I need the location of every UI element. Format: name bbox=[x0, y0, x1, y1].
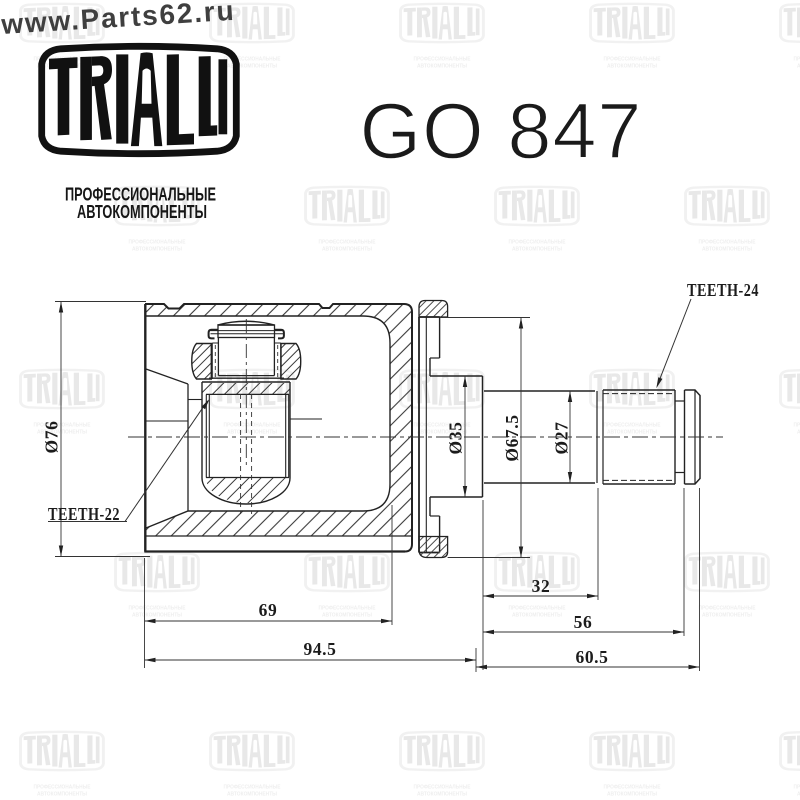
svg-text:Ø27: Ø27 bbox=[552, 422, 572, 455]
svg-text:ПРОФЕССИОНАЛЬНЫЕ: ПРОФЕССИОНАЛЬНЫЕ bbox=[699, 606, 756, 612]
svg-text:69: 69 bbox=[259, 600, 278, 620]
svg-text:АВТОКОМПОНЕНТЫ: АВТОКОМПОНЕНТЫ bbox=[77, 201, 207, 222]
svg-text:56: 56 bbox=[574, 612, 593, 632]
svg-text:Ø35: Ø35 bbox=[446, 422, 466, 455]
svg-text:TEETH-24: TEETH-24 bbox=[687, 280, 759, 300]
svg-text:ПРОФЕССИОНАЛЬНЫЕ: ПРОФЕССИОНАЛЬНЫЕ bbox=[699, 240, 756, 246]
svg-text:ПРОФЕССИОНАЛЬНЫЕ: ПРОФЕССИОНАЛЬНЫЕ bbox=[129, 606, 186, 612]
svg-text:АВТОКОМПОНЕНТЫ: АВТОКОМПОНЕНТЫ bbox=[322, 613, 372, 619]
svg-text:ПРОФЕССИОНАЛЬНЫЕ: ПРОФЕССИОНАЛЬНЫЕ bbox=[794, 423, 800, 429]
svg-text:ПРОФЕССИОНАЛЬНЫЕ: ПРОФЕССИОНАЛЬНЫЕ bbox=[414, 57, 471, 63]
svg-text:АВТОКОМПОНЕНТЫ: АВТОКОМПОНЕНТЫ bbox=[607, 792, 657, 798]
svg-text:ПРОФЕССИОНАЛЬНЫЕ: ПРОФЕССИОНАЛЬНЫЕ bbox=[794, 57, 800, 63]
svg-text:94.5: 94.5 bbox=[303, 639, 336, 659]
svg-text:ПРОФЕССИОНАЛЬНЫЕ: ПРОФЕССИОНАЛЬНЫЕ bbox=[129, 240, 186, 246]
svg-text:АВТОКОМПОНЕНТЫ: АВТОКОМПОНЕНТЫ bbox=[417, 792, 467, 798]
svg-text:АВТОКОМПОНЕНТЫ: АВТОКОМПОНЕНТЫ bbox=[512, 247, 562, 253]
svg-text:ПРОФЕССИОНАЛЬНЫЕ: ПРОФЕССИОНАЛЬНЫЕ bbox=[604, 423, 661, 429]
svg-text:АВТОКОМПОНЕНТЫ: АВТОКОМПОНЕНТЫ bbox=[132, 613, 182, 619]
svg-text:www.Parts62.ru: www.Parts62.ru bbox=[0, 0, 236, 40]
svg-text:32: 32 bbox=[532, 576, 551, 596]
svg-text:АВТОКОМПОНЕНТЫ: АВТОКОМПОНЕНТЫ bbox=[132, 247, 182, 253]
svg-text:ПРОФЕССИОНАЛЬНЫЕ: ПРОФЕССИОНАЛЬНЫЕ bbox=[794, 785, 800, 791]
svg-text:ПРОФЕССИОНАЛЬНЫЕ: ПРОФЕССИОНАЛЬНЫЕ bbox=[509, 240, 566, 246]
svg-text:ПРОФЕССИОНАЛЬНЫЕ: ПРОФЕССИОНАЛЬНЫЕ bbox=[34, 785, 91, 791]
svg-text:АВТОКОМПОНЕНТЫ: АВТОКОМПОНЕНТЫ bbox=[227, 792, 277, 798]
svg-text:АВТОКОМПОНЕНТЫ: АВТОКОМПОНЕНТЫ bbox=[512, 613, 562, 619]
svg-text:АВТОКОМПОНЕНТЫ: АВТОКОМПОНЕНТЫ bbox=[227, 430, 277, 436]
svg-text:ПРОФЕССИОНАЛЬНЫЕ: ПРОФЕССИОНАЛЬНЫЕ bbox=[414, 785, 471, 791]
svg-text:Ø76: Ø76 bbox=[42, 421, 62, 454]
svg-text:ПРОФЕССИОНАЛЬНЫЕ: ПРОФЕССИОНАЛЬНЫЕ bbox=[509, 606, 566, 612]
svg-text:АВТОКОМПОНЕНТЫ: АВТОКОМПОНЕНТЫ bbox=[607, 430, 657, 436]
svg-text:ПРОФЕССИОНАЛЬНЫЕ: ПРОФЕССИОНАЛЬНЫЕ bbox=[319, 606, 376, 612]
svg-text:ПРОФЕССИОНАЛЬНЫЕ: ПРОФЕССИОНАЛЬНЫЕ bbox=[319, 240, 376, 246]
svg-text:ПРОФЕССИОНАЛЬНЫЕ: ПРОФЕССИОНАЛЬНЫЕ bbox=[224, 423, 281, 429]
svg-text:АВТОКОМПОНЕНТЫ: АВТОКОМПОНЕНТЫ bbox=[702, 613, 752, 619]
svg-text:АВТОКОМПОНЕНТЫ: АВТОКОМПОНЕНТЫ bbox=[702, 247, 752, 253]
svg-text:АВТОКОМПОНЕНТЫ: АВТОКОМПОНЕНТЫ bbox=[37, 792, 87, 798]
svg-text:АВТОКОМПОНЕНТЫ: АВТОКОМПОНЕНТЫ bbox=[417, 64, 467, 70]
svg-text:60.5: 60.5 bbox=[575, 647, 608, 667]
svg-text:АВТОКОМПОНЕНТЫ: АВТОКОМПОНЕНТЫ bbox=[607, 64, 657, 70]
svg-text:АВТОКОМПОНЕНТЫ: АВТОКОМПОНЕНТЫ bbox=[322, 247, 372, 253]
svg-text:ПРОФЕССИОНАЛЬНЫЕ: ПРОФЕССИОНАЛЬНЫЕ bbox=[224, 785, 281, 791]
svg-text:Ø67.5: Ø67.5 bbox=[502, 414, 522, 461]
svg-text:ПРОФЕССИОНАЛЬНЫЕ: ПРОФЕССИОНАЛЬНЫЕ bbox=[604, 785, 661, 791]
svg-text:ПРОФЕССИОНАЛЬНЫЕ: ПРОФЕССИОНАЛЬНЫЕ bbox=[604, 57, 661, 63]
svg-text:GO 847: GO 847 bbox=[360, 86, 643, 175]
